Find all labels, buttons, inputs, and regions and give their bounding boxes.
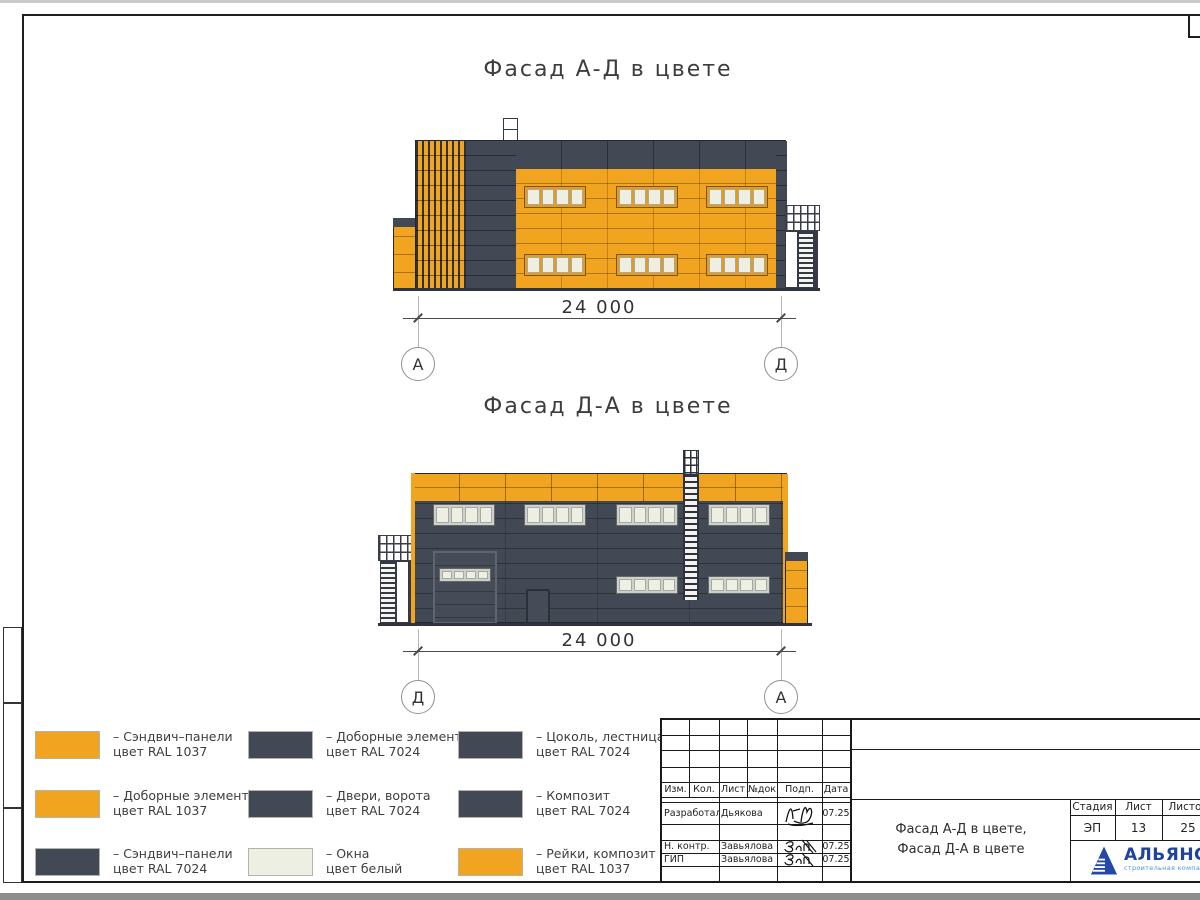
entry-door — [526, 589, 550, 624]
color-swatch — [35, 790, 100, 818]
window — [708, 576, 770, 594]
axis-bubble-right: Д — [764, 347, 798, 381]
name-cell: Завьялова — [719, 840, 777, 853]
sectional-gate — [433, 551, 497, 624]
doc-title: Фасад А-Д в цвете, Фасад Д-А в цвете — [852, 799, 1070, 881]
roof-vent — [503, 118, 518, 141]
facade2-title: Фасад Д-А в цвете — [393, 394, 823, 419]
signature-razrabotal — [780, 800, 820, 826]
legend-label: – Доборные элементы — [113, 789, 259, 804]
margin-box-1 — [3, 627, 22, 703]
stair-treads — [798, 231, 814, 288]
margin-box-2 — [3, 703, 22, 808]
legend-label: цвет RAL 7024 — [326, 804, 431, 819]
window — [706, 254, 768, 276]
sheets-header: Листов — [1162, 799, 1200, 815]
legend-label: цвет RAL 7024 — [536, 804, 630, 819]
pyramid-logo-icon — [1090, 845, 1118, 876]
dimension-line — [403, 318, 796, 319]
drawing-sheet: { "titles": { "facade1": "Фасад А-Д в цв… — [0, 0, 1200, 900]
legend-item: – Сэндвич–панелицвет RAL 7024 — [35, 847, 233, 876]
top-orange-band — [414, 474, 788, 501]
company-logo: АЛЬЯНС строительная компания — [1070, 840, 1200, 881]
logo-subtitle: строительная компания — [1124, 864, 1200, 872]
legend-item: – Композитцвет RAL 7024 — [458, 789, 630, 818]
facade1-drawing — [393, 118, 820, 293]
facade2-wall — [413, 473, 787, 623]
color-swatch — [458, 790, 523, 818]
roof-ladder — [683, 475, 699, 600]
extension-line — [781, 629, 782, 680]
external-stair-right — [785, 205, 820, 290]
color-swatch — [35, 731, 100, 759]
doc-title-line2: Фасад Д-А в цвете — [897, 840, 1024, 860]
stair-treads — [380, 561, 396, 623]
facade1-dimension: 24 000 А Д — [393, 296, 820, 386]
color-swatch — [248, 790, 313, 818]
axis-label: А — [413, 355, 424, 374]
legend-label: – Сэндвич–панели — [113, 730, 233, 745]
screen-top-edge — [0, 0, 1200, 3]
facade2-drawing — [378, 450, 812, 628]
stair-railing — [785, 205, 820, 231]
col-kol: Кол. — [689, 782, 719, 797]
external-stair-left — [378, 535, 415, 626]
legend-label: цвет RAL 7024 — [113, 862, 233, 877]
axis-label: А — [776, 688, 787, 707]
sheets-total: 25 — [1162, 815, 1200, 840]
window — [616, 504, 678, 526]
legend-label: – Композит — [536, 789, 630, 804]
axis-bubble-right: А — [764, 680, 798, 714]
screen-bottom-edge — [0, 893, 1200, 900]
col-podp: Подп. — [777, 782, 822, 797]
legend-label: цвет RAL 7024 — [536, 745, 664, 760]
facade1-title: Фасад А-Д в цвете — [393, 57, 823, 82]
legend-label: – Сэндвич–панели — [113, 847, 233, 862]
date-cell: 07.25 — [822, 802, 850, 824]
ground-line — [393, 288, 820, 291]
col-ndok: №док — [747, 782, 777, 797]
sheet-header: Лист — [1115, 799, 1162, 815]
logo-text: АЛЬЯНС — [1124, 847, 1200, 864]
legend-label: цвет RAL 7024 — [326, 745, 472, 760]
role-cell: ГИП — [662, 853, 719, 866]
window — [616, 576, 678, 594]
legend-item: – Окнацвет белый — [248, 847, 402, 876]
facade2-right-annex — [785, 552, 808, 626]
legend-label: цвет RAL 1037 — [113, 745, 233, 760]
doc-title-line1: Фасад А-Д в цвете, — [895, 820, 1026, 840]
top-dark-band — [516, 141, 787, 169]
window — [524, 186, 586, 208]
stair-railing — [378, 535, 415, 561]
legend-label: – Окна — [326, 847, 402, 862]
color-swatch — [248, 848, 313, 876]
axis-label: Д — [775, 355, 788, 374]
date-cell: 07.25 — [822, 840, 850, 853]
legend-item: – Рейки, композитцвет RAL 1037 — [458, 847, 656, 876]
col-izm: Изм. — [662, 782, 689, 797]
window — [433, 504, 495, 526]
legend-label: цвет RAL 1037 — [536, 862, 656, 877]
legend-label: – Рейки, композит — [536, 847, 656, 862]
stage-value: ЭП — [1070, 815, 1115, 840]
extension-line — [418, 629, 419, 680]
axis-bubble-left: Д — [401, 680, 435, 714]
margin-box-3 — [3, 808, 22, 883]
facade2-dimension: 24 000 Д А — [378, 629, 812, 719]
facade1-left-annex — [393, 218, 416, 290]
window — [524, 504, 586, 526]
color-swatch — [248, 731, 313, 759]
legend-item: – Сэндвич–панелицвет RAL 1037 — [35, 730, 233, 759]
gate-window — [439, 568, 491, 582]
name-cell: Дьякова — [719, 802, 777, 824]
dimension-line — [403, 651, 796, 652]
date-cell: 07.25 — [822, 853, 850, 866]
signature-gip — [782, 852, 820, 867]
legend-item: – Доборные элементыцвет RAL 1037 — [35, 789, 259, 818]
axis-label: Д — [412, 688, 425, 707]
window — [524, 254, 586, 276]
legend-label: – Доборные элементы — [326, 730, 472, 745]
legend-item: – Доборные элементыцвет RAL 7024 — [248, 730, 472, 759]
facade1-wall — [415, 140, 786, 290]
legend-label: цвет RAL 1037 — [113, 804, 259, 819]
sheet-number: 13 — [1115, 815, 1162, 840]
ground-line — [378, 623, 812, 626]
color-swatch — [35, 848, 100, 876]
role-cell: Н. контр. — [662, 840, 719, 853]
stair-stringer — [785, 231, 798, 288]
stair-post — [814, 231, 818, 288]
window — [706, 186, 768, 208]
window — [708, 504, 770, 526]
legend-label: цвет белый — [326, 862, 402, 877]
window — [616, 254, 678, 276]
window — [616, 186, 678, 208]
extension-line — [418, 296, 419, 347]
legend-label: – Цоколь, лестница — [536, 730, 664, 745]
col-data: Дата — [822, 782, 850, 797]
stage-header: Стадия — [1070, 799, 1115, 815]
axis-bubble-left: А — [401, 347, 435, 381]
color-swatch — [458, 731, 523, 759]
role-cell: Разработал — [662, 802, 719, 824]
legend-item: – Цоколь, лестницацвет RAL 7024 — [458, 730, 664, 759]
color-swatch — [458, 848, 523, 876]
dark-panel-section — [466, 141, 516, 291]
title-block: Изм. Кол. Лист №док Подп. Дата Разработа… — [660, 718, 1200, 883]
name-cell: Завьялова — [719, 853, 777, 866]
dimension-value: 24 000 — [499, 630, 699, 651]
ladder-cage — [683, 450, 699, 475]
extension-line — [781, 296, 782, 347]
col-list: Лист — [719, 782, 747, 797]
dimension-value: 24 000 — [499, 297, 699, 318]
corner-orange-strip — [411, 473, 415, 623]
corner-stamp-box — [1188, 14, 1200, 38]
stair-stringer — [396, 561, 409, 623]
orange-slats-section — [416, 141, 466, 291]
legend-label: – Двери, ворота — [326, 789, 431, 804]
legend-item: – Двери, воротацвет RAL 7024 — [248, 789, 431, 818]
